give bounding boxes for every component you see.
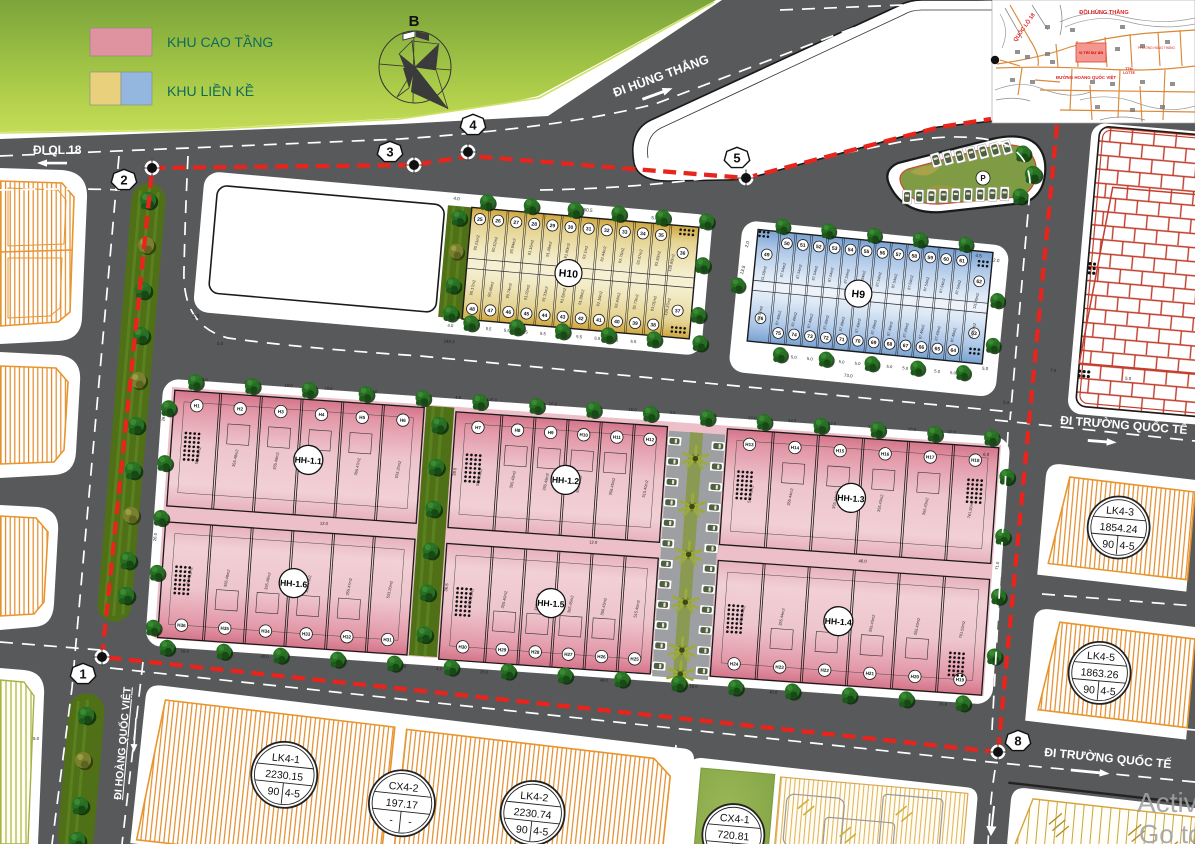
svg-text:5.0: 5.0	[217, 341, 224, 346]
svg-text:HH-1.3: HH-1.3	[837, 492, 865, 504]
svg-text:25: 25	[477, 217, 483, 223]
svg-text:90: 90	[1102, 538, 1115, 551]
svg-text:H4: H4	[318, 412, 325, 417]
svg-text:HH-1.6: HH-1.6	[280, 578, 308, 590]
svg-text:90: 90	[267, 785, 280, 798]
svg-text:34: 34	[640, 231, 646, 237]
svg-text:Go to: Go to	[1139, 819, 1195, 844]
svg-text:45: 45	[523, 311, 529, 317]
svg-text:H1: H1	[194, 403, 201, 408]
svg-text:H33: H33	[302, 631, 311, 637]
svg-text:HH-1.2: HH-1.2	[552, 474, 580, 486]
svg-text:6.0: 6.0	[983, 452, 990, 458]
svg-text:H18: H18	[971, 458, 980, 464]
svg-text:16.5: 16.5	[689, 684, 698, 690]
svg-text:70: 70	[855, 338, 861, 345]
svg-text:75: 75	[775, 331, 781, 338]
svg-text:71: 71	[839, 337, 845, 344]
svg-text:57: 57	[895, 252, 901, 259]
svg-text:10.0: 10.0	[324, 386, 333, 392]
svg-text:4.5: 4.5	[455, 395, 462, 400]
svg-text:46: 46	[505, 310, 511, 316]
svg-text:H17: H17	[926, 454, 935, 460]
svg-text:62: 62	[976, 279, 982, 286]
svg-text:14.5: 14.5	[788, 418, 797, 424]
svg-text:33: 33	[622, 229, 628, 235]
svg-text:4.0: 4.0	[453, 196, 460, 202]
svg-text:27: 27	[513, 220, 519, 226]
svg-text:H5: H5	[359, 415, 366, 420]
svg-text:74: 74	[791, 332, 797, 339]
svg-text:72: 72	[823, 335, 829, 342]
svg-text:H3: H3	[278, 409, 285, 414]
svg-text:29: 29	[549, 223, 555, 229]
svg-text:60.5: 60.5	[583, 207, 593, 213]
svg-text:31: 31	[586, 226, 592, 232]
svg-text:59: 59	[927, 255, 933, 262]
svg-text:H31: H31	[383, 637, 392, 643]
svg-text:41: 41	[596, 317, 602, 323]
svg-text:68: 68	[886, 341, 892, 348]
svg-text:53: 53	[832, 246, 838, 253]
svg-text:H26: H26	[597, 654, 606, 660]
svg-text:H15: H15	[836, 448, 845, 454]
svg-text:H11: H11	[613, 435, 622, 441]
svg-text:H29: H29	[498, 647, 507, 653]
svg-text:67: 67	[902, 343, 908, 350]
svg-text:35: 35	[658, 233, 664, 239]
svg-text:H8: H8	[514, 428, 521, 433]
svg-text:H7: H7	[475, 425, 482, 430]
svg-text:55: 55	[863, 249, 869, 256]
svg-text:1: 1	[79, 667, 86, 682]
svg-text:65: 65	[934, 346, 940, 353]
svg-text:40.0: 40.0	[260, 654, 269, 660]
svg-text:4-5: 4-5	[284, 787, 301, 801]
svg-text:5: 5	[733, 151, 740, 166]
svg-text:4: 4	[469, 118, 477, 133]
svg-text:Activ: Activ	[1137, 787, 1195, 818]
svg-text:H10: H10	[558, 267, 578, 281]
svg-text:4-5: 4-5	[1119, 540, 1135, 553]
svg-text:60: 60	[943, 257, 949, 264]
svg-text:3.0: 3.0	[669, 410, 676, 415]
svg-text:2: 2	[120, 173, 127, 188]
svg-text:10.0: 10.0	[628, 407, 637, 413]
svg-text:37: 37	[675, 308, 681, 314]
svg-text:H21: H21	[865, 671, 874, 677]
svg-text:5.5: 5.5	[540, 331, 547, 337]
svg-text:15.0: 15.0	[489, 397, 498, 403]
svg-text:5.0: 5.0	[33, 736, 40, 741]
svg-text:H28: H28	[531, 649, 540, 655]
svg-text:H27: H27	[564, 652, 573, 658]
svg-text:52: 52	[816, 244, 822, 251]
svg-text:30: 30	[567, 225, 573, 231]
svg-text:58: 58	[911, 253, 917, 260]
svg-text:90: 90	[1083, 684, 1096, 697]
svg-text:51: 51	[800, 242, 806, 249]
svg-text:26: 26	[495, 218, 501, 224]
svg-text:H24: H24	[730, 661, 739, 667]
svg-text:ĐỒI HÙNG THẮNG: ĐỒI HÙNG THẮNG	[1079, 8, 1128, 16]
svg-text:H36: H36	[177, 623, 186, 629]
svg-text:5.5: 5.5	[630, 339, 637, 345]
svg-text:7.5: 7.5	[1050, 368, 1057, 374]
svg-text:H25: H25	[630, 656, 639, 662]
svg-text:42: 42	[578, 316, 584, 322]
svg-text:H9: H9	[548, 430, 555, 435]
svg-text:5.0: 5.0	[1003, 400, 1010, 406]
svg-text:HH-1.4: HH-1.4	[824, 616, 852, 628]
svg-text:10.0: 10.0	[908, 426, 917, 432]
svg-text:50: 50	[784, 241, 790, 248]
svg-text:40.0: 40.0	[599, 677, 608, 683]
svg-text:PHƯỜNG HÙNG THẮNG: PHƯỜNG HÙNG THẮNG	[1138, 45, 1175, 50]
svg-text:140.3: 140.3	[443, 338, 455, 344]
svg-text:66: 66	[918, 345, 924, 352]
svg-text:H6: H6	[400, 418, 407, 423]
svg-text:40.0: 40.0	[769, 689, 778, 695]
svg-text:38: 38	[650, 322, 656, 328]
svg-text:LK4-3: LK4-3	[1106, 504, 1135, 518]
svg-text:90: 90	[515, 823, 528, 836]
svg-text:H30: H30	[458, 644, 467, 650]
svg-text:43: 43	[560, 314, 566, 320]
svg-text:3: 3	[386, 145, 393, 160]
svg-text:73.0: 73.0	[844, 373, 854, 379]
svg-text:16.0: 16.0	[180, 648, 189, 654]
svg-text:KHU CAO TẦNG: KHU CAO TẦNG	[167, 34, 273, 50]
svg-text:61: 61	[959, 258, 965, 265]
svg-text:44: 44	[541, 313, 547, 319]
svg-text:H10: H10	[579, 432, 588, 438]
svg-text:VỊ TRÍ DỰ ÁN: VỊ TRÍ DỰ ÁN	[1079, 50, 1104, 55]
svg-text:H22: H22	[820, 668, 829, 674]
svg-text:40: 40	[614, 319, 620, 325]
svg-text:4.5: 4.5	[436, 666, 443, 671]
svg-text:B: B	[409, 13, 420, 30]
svg-text:HH-1.1: HH-1.1	[294, 454, 322, 466]
svg-text:56: 56	[879, 250, 885, 257]
svg-text:64: 64	[950, 348, 956, 355]
svg-text:4-5: 4-5	[533, 825, 550, 839]
svg-text:69: 69	[871, 340, 877, 347]
svg-text:8: 8	[1014, 734, 1021, 749]
svg-text:2.0: 2.0	[993, 258, 1000, 264]
svg-text:H12: H12	[646, 437, 655, 443]
svg-text:H13: H13	[745, 442, 754, 448]
svg-text:H14: H14	[791, 445, 800, 451]
svg-text:48: 48	[469, 306, 475, 312]
svg-text:H34: H34	[261, 628, 270, 634]
svg-text:5.5: 5.5	[486, 326, 493, 332]
svg-text:15.8: 15.8	[939, 701, 948, 707]
svg-text:39: 39	[632, 321, 638, 327]
svg-text:H2: H2	[237, 406, 244, 411]
svg-text:5.5: 5.5	[594, 336, 601, 342]
svg-text:H16: H16	[881, 451, 890, 457]
svg-text:10.0: 10.0	[549, 401, 558, 407]
svg-text:10.0: 10.0	[284, 383, 293, 389]
svg-text:KHU LIỀN KỀ: KHU LIỀN KỀ	[167, 83, 254, 99]
svg-text:12.0: 12.0	[320, 521, 329, 527]
svg-text:73: 73	[807, 334, 813, 341]
svg-text:H32: H32	[342, 634, 351, 640]
svg-text:5.0: 5.0	[1125, 376, 1132, 382]
svg-text:H9: H9	[851, 288, 866, 301]
svg-text:46.0: 46.0	[858, 558, 867, 564]
svg-text:15.0: 15.0	[480, 669, 489, 675]
svg-text:4.5: 4.5	[975, 253, 982, 259]
svg-text:H35: H35	[220, 626, 229, 632]
svg-text:P: P	[980, 174, 986, 183]
svg-text:32: 32	[604, 228, 610, 234]
svg-text:H23: H23	[775, 664, 784, 670]
svg-text:ĐƯỜNG HOÀNG QUỐC VIỆT: ĐƯỜNG HOÀNG QUỐC VIỆT	[1056, 75, 1116, 80]
svg-text:47: 47	[487, 308, 493, 314]
svg-text:LK4-5: LK4-5	[1087, 650, 1116, 664]
svg-text:28: 28	[531, 221, 537, 227]
svg-text:54: 54	[847, 247, 853, 254]
svg-text:12.0: 12.0	[589, 539, 598, 545]
svg-text:4.0: 4.0	[447, 323, 454, 329]
svg-text:49: 49	[764, 252, 770, 259]
svg-text:10.0: 10.0	[948, 429, 957, 435]
svg-text:4-5: 4-5	[1100, 685, 1116, 698]
svg-text:ĐI QL 18: ĐI QL 18	[33, 143, 82, 157]
svg-text:5.0: 5.0	[193, 314, 200, 320]
svg-text:H20: H20	[910, 674, 919, 680]
svg-text:H19: H19	[956, 677, 965, 683]
svg-text:10.0: 10.0	[748, 415, 757, 421]
svg-text:HH-1.5: HH-1.5	[537, 598, 565, 610]
svg-text:5.0: 5.0	[982, 366, 989, 372]
svg-text:36: 36	[680, 251, 686, 257]
svg-text:5.5: 5.5	[576, 334, 583, 340]
